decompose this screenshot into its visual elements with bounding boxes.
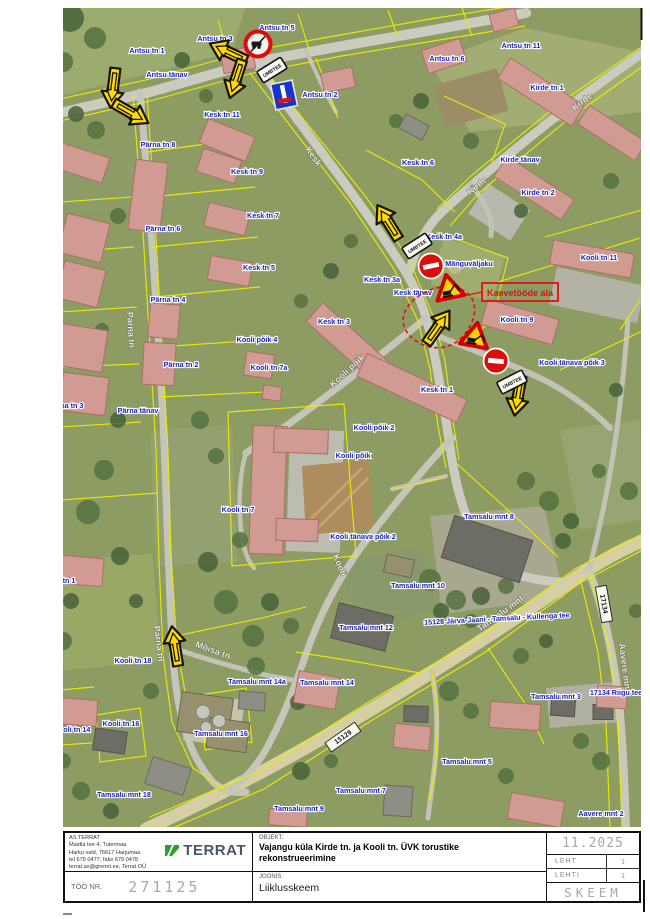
map-label: Kesk tn 7 — [247, 211, 279, 220]
map-label: Pärna tn 8 — [141, 140, 176, 149]
company-address: AS TERRAT Maidla tee 4, Tutermaa Harku v… — [69, 835, 174, 871]
joonis-value: Liiklusskeem — [259, 882, 540, 894]
map-label: Tamsalu mnt 14a — [228, 677, 287, 686]
tree-cluster — [129, 594, 143, 608]
tree-cluster — [111, 547, 129, 565]
joonis-cell: JOONIS: Liiklusskeem — [253, 872, 547, 901]
map-label: Tamsalu mnt 5 — [442, 757, 492, 766]
map-label: Tamsalu mnt 3 — [531, 692, 581, 701]
company-line: Maidla tee 4, Tutermaa — [69, 842, 174, 849]
tree-cluster — [242, 625, 264, 647]
map-label: Tamsalu mnt 9 — [274, 804, 324, 813]
map-area: KeskKirdeKirdeKooli põikKooliTamsalu mnt… — [41, 4, 650, 836]
tree-cluster — [53, 52, 73, 72]
map-label: 17134 Riigu tee — [590, 688, 642, 697]
map-label: Kesk tn 4a — [426, 232, 463, 241]
tree-cluster — [472, 587, 490, 605]
map-label: Kesk tn 3 — [318, 317, 350, 326]
map-label: Antsu tn 2 — [302, 90, 337, 99]
tree-cluster — [620, 482, 638, 500]
tree-cluster — [517, 472, 535, 490]
building — [58, 698, 98, 727]
map-label: Pärna tänav — [118, 406, 159, 415]
terrat-logo-icon — [163, 841, 181, 859]
tree-cluster — [294, 294, 308, 308]
drawing-sheet: KeskKirdeKirdeKooli põikKooliTamsalu mnt… — [0, 0, 650, 919]
map-label: Kooli põik 4 — [237, 335, 278, 344]
joonis-label: JOONIS: — [259, 874, 540, 880]
map-label: Tamsalu mnt 8 — [464, 512, 514, 521]
date-value: 11.2025 — [547, 833, 639, 855]
building — [262, 385, 282, 401]
map-label: Kooli tn 9 — [501, 315, 534, 324]
map-label: Aavere mnt 2 — [578, 809, 623, 818]
stage-value: SKEEM — [547, 883, 639, 901]
terrat-logo-text: TERRAT — [183, 842, 246, 859]
leht-row: LEHT 1 — [547, 855, 639, 869]
map-label: Tamsalu mnt 16 — [194, 729, 248, 738]
building — [489, 701, 541, 730]
work-number-cell: TÖÖ NR. 271125 — [65, 872, 253, 901]
tree-cluster — [63, 593, 79, 609]
tree-cluster — [563, 513, 579, 529]
tree-cluster — [592, 464, 606, 478]
tree-cluster — [603, 173, 619, 189]
tree-cluster — [191, 411, 209, 429]
objekt-label: OBJEKT: — [259, 835, 540, 841]
no-vehicles-sign — [246, 32, 271, 57]
tree-cluster — [609, 383, 623, 397]
map-label: Kooli tn 11 — [581, 253, 617, 262]
traffic-scheme-map: KeskKirdeKirdeKooli põikKooliTamsalu mnt… — [0, 0, 650, 919]
work-number-label: TÖÖ NR. — [71, 882, 102, 891]
tree-cluster — [247, 657, 265, 675]
tree-cluster — [54, 632, 72, 650]
leht-label: LEHT — [547, 855, 606, 868]
tree-cluster — [324, 754, 338, 768]
map-label: Kesk tn 6 — [402, 158, 434, 167]
map-label: Antsu tn 1 — [129, 46, 164, 55]
map-label: Tamsalu mnt 10 — [391, 581, 445, 590]
map-label: Kooli tänava põik 3 — [539, 358, 605, 367]
map-label: Kooli tn 7 — [222, 505, 255, 514]
tree-cluster — [539, 634, 553, 648]
lehti-value: 1 — [606, 869, 639, 882]
title-block: AS TERRAT Maidla tee 4, Tutermaa Harku v… — [63, 831, 641, 903]
map-label: Kesk tn 3a — [364, 275, 401, 284]
tree-cluster — [72, 782, 90, 800]
company-line: terrat.as@grenet.ee, Terrat OÜ — [69, 864, 174, 871]
tree-cluster — [56, 4, 84, 32]
map-label: Kooli tn 7a — [251, 363, 289, 372]
company-cell: AS TERRAT Maidla tee 4, Tutermaa Harku v… — [65, 833, 253, 872]
map-label: Tamsalu mnt 18 — [97, 790, 151, 799]
map-label: Pärna tn 1 — [41, 576, 76, 585]
tree-cluster — [94, 460, 114, 480]
tree-cluster — [514, 204, 528, 218]
company-line: tel 679 0477; faks 679 0478 — [69, 857, 174, 864]
tree-cluster — [513, 648, 529, 664]
building — [393, 723, 431, 751]
objekt-value: Vajangu küla Kirde tn. ja Kooli tn. ÜVK … — [259, 842, 509, 863]
tree-cluster — [199, 89, 213, 103]
tree-cluster — [87, 121, 105, 139]
map-label: Kooli põik — [336, 451, 371, 460]
map-label: Kesk tn 1 — [421, 385, 453, 394]
tree-cluster — [232, 532, 248, 548]
tree-cluster — [76, 500, 100, 524]
tree-cluster — [103, 803, 119, 819]
map-label: Kooli tn 14 — [54, 725, 91, 734]
map-label: Kirde tn 1 — [530, 83, 563, 92]
map-label: Tamsalu mnt 14 — [300, 678, 354, 687]
map-label: Antsu tn 6 — [429, 54, 464, 63]
map-label: Kesk tn 9 — [231, 167, 263, 176]
tree-cluster — [629, 604, 643, 618]
building — [383, 785, 413, 817]
tree-cluster — [283, 618, 299, 634]
tree-cluster — [463, 133, 479, 149]
company-line: Harku vald, 76617 Harjumaa — [69, 850, 174, 857]
tree-cluster — [413, 93, 429, 109]
map-label: Antsu tn 11 — [502, 41, 541, 50]
tree-cluster — [539, 491, 559, 511]
tree-cluster — [174, 52, 190, 68]
tree-cluster — [573, 733, 589, 749]
tree-cluster — [198, 552, 218, 572]
map-label: Pärna tn 3 — [49, 401, 84, 410]
building — [276, 518, 319, 541]
building — [274, 428, 329, 454]
tree-cluster — [68, 106, 84, 122]
tree-cluster — [214, 590, 238, 614]
lehti-label: LEHTI — [547, 869, 606, 882]
tree-cluster — [463, 703, 479, 719]
tree-cluster — [292, 762, 310, 780]
road-name-label: Pärna tn — [125, 312, 137, 348]
objekt-cell: OBJEKT: Vajangu küla Kirde tn. ja Kooli … — [253, 833, 547, 872]
tree-cluster — [555, 533, 571, 549]
company-line: AS TERRAT — [69, 835, 174, 842]
tree-cluster — [323, 263, 339, 279]
map-label: Pärna tn 4 — [151, 295, 186, 304]
map-label: Kooli tn 16 — [103, 719, 140, 728]
map-label: Kooli põik 2 — [354, 423, 395, 432]
building — [93, 728, 128, 754]
tree-cluster — [446, 590, 466, 610]
map-label: Kooli tn 18 — [115, 656, 152, 665]
map-label: Pärna tn 6 — [146, 224, 181, 233]
map-label: Kesk tn 5 — [243, 263, 275, 272]
map-label: Kirde tänav — [500, 155, 539, 164]
work-zone-label: Kaevetööde ala — [487, 288, 554, 298]
building — [238, 691, 265, 711]
tree-cluster — [143, 683, 159, 699]
building — [294, 671, 341, 710]
building — [56, 324, 108, 373]
tree-cluster — [261, 593, 279, 611]
leht-value: 1 — [606, 855, 639, 868]
tree-cluster — [55, 753, 71, 769]
sheet-info-cell: 11.2025 LEHT 1 LEHTI 1 SKEEM — [547, 833, 639, 901]
map-label: Antsu tn 5 — [259, 23, 294, 32]
tree-cluster — [498, 768, 514, 784]
map-label: Pärna tn 2 — [164, 360, 199, 369]
terrat-logo: TERRAT — [163, 841, 246, 859]
tree-cluster — [84, 27, 106, 49]
tree-cluster — [208, 448, 224, 464]
map-label: Tamsalu mnt 7 — [336, 786, 386, 795]
map-label: Tamsalu mnt 12 — [339, 623, 393, 632]
map-label: Kirde tn 2 — [521, 188, 554, 197]
lehti-row: LEHTI 1 — [547, 869, 639, 883]
tree-cluster — [344, 234, 358, 248]
map-label: Mänguväljaku — [445, 259, 493, 268]
tree-cluster — [439, 681, 459, 701]
map-label: Antsu tänav — [146, 70, 187, 79]
tree-cluster — [110, 208, 126, 224]
dead-end-sign — [271, 80, 298, 110]
map-label: Kesk tn 11 — [204, 110, 240, 119]
map-label: Kooli tänava põik 2 — [330, 532, 396, 541]
building — [148, 303, 181, 339]
building — [404, 706, 429, 723]
work-number-value: 271125 — [128, 878, 200, 896]
tree-cluster — [592, 752, 610, 770]
